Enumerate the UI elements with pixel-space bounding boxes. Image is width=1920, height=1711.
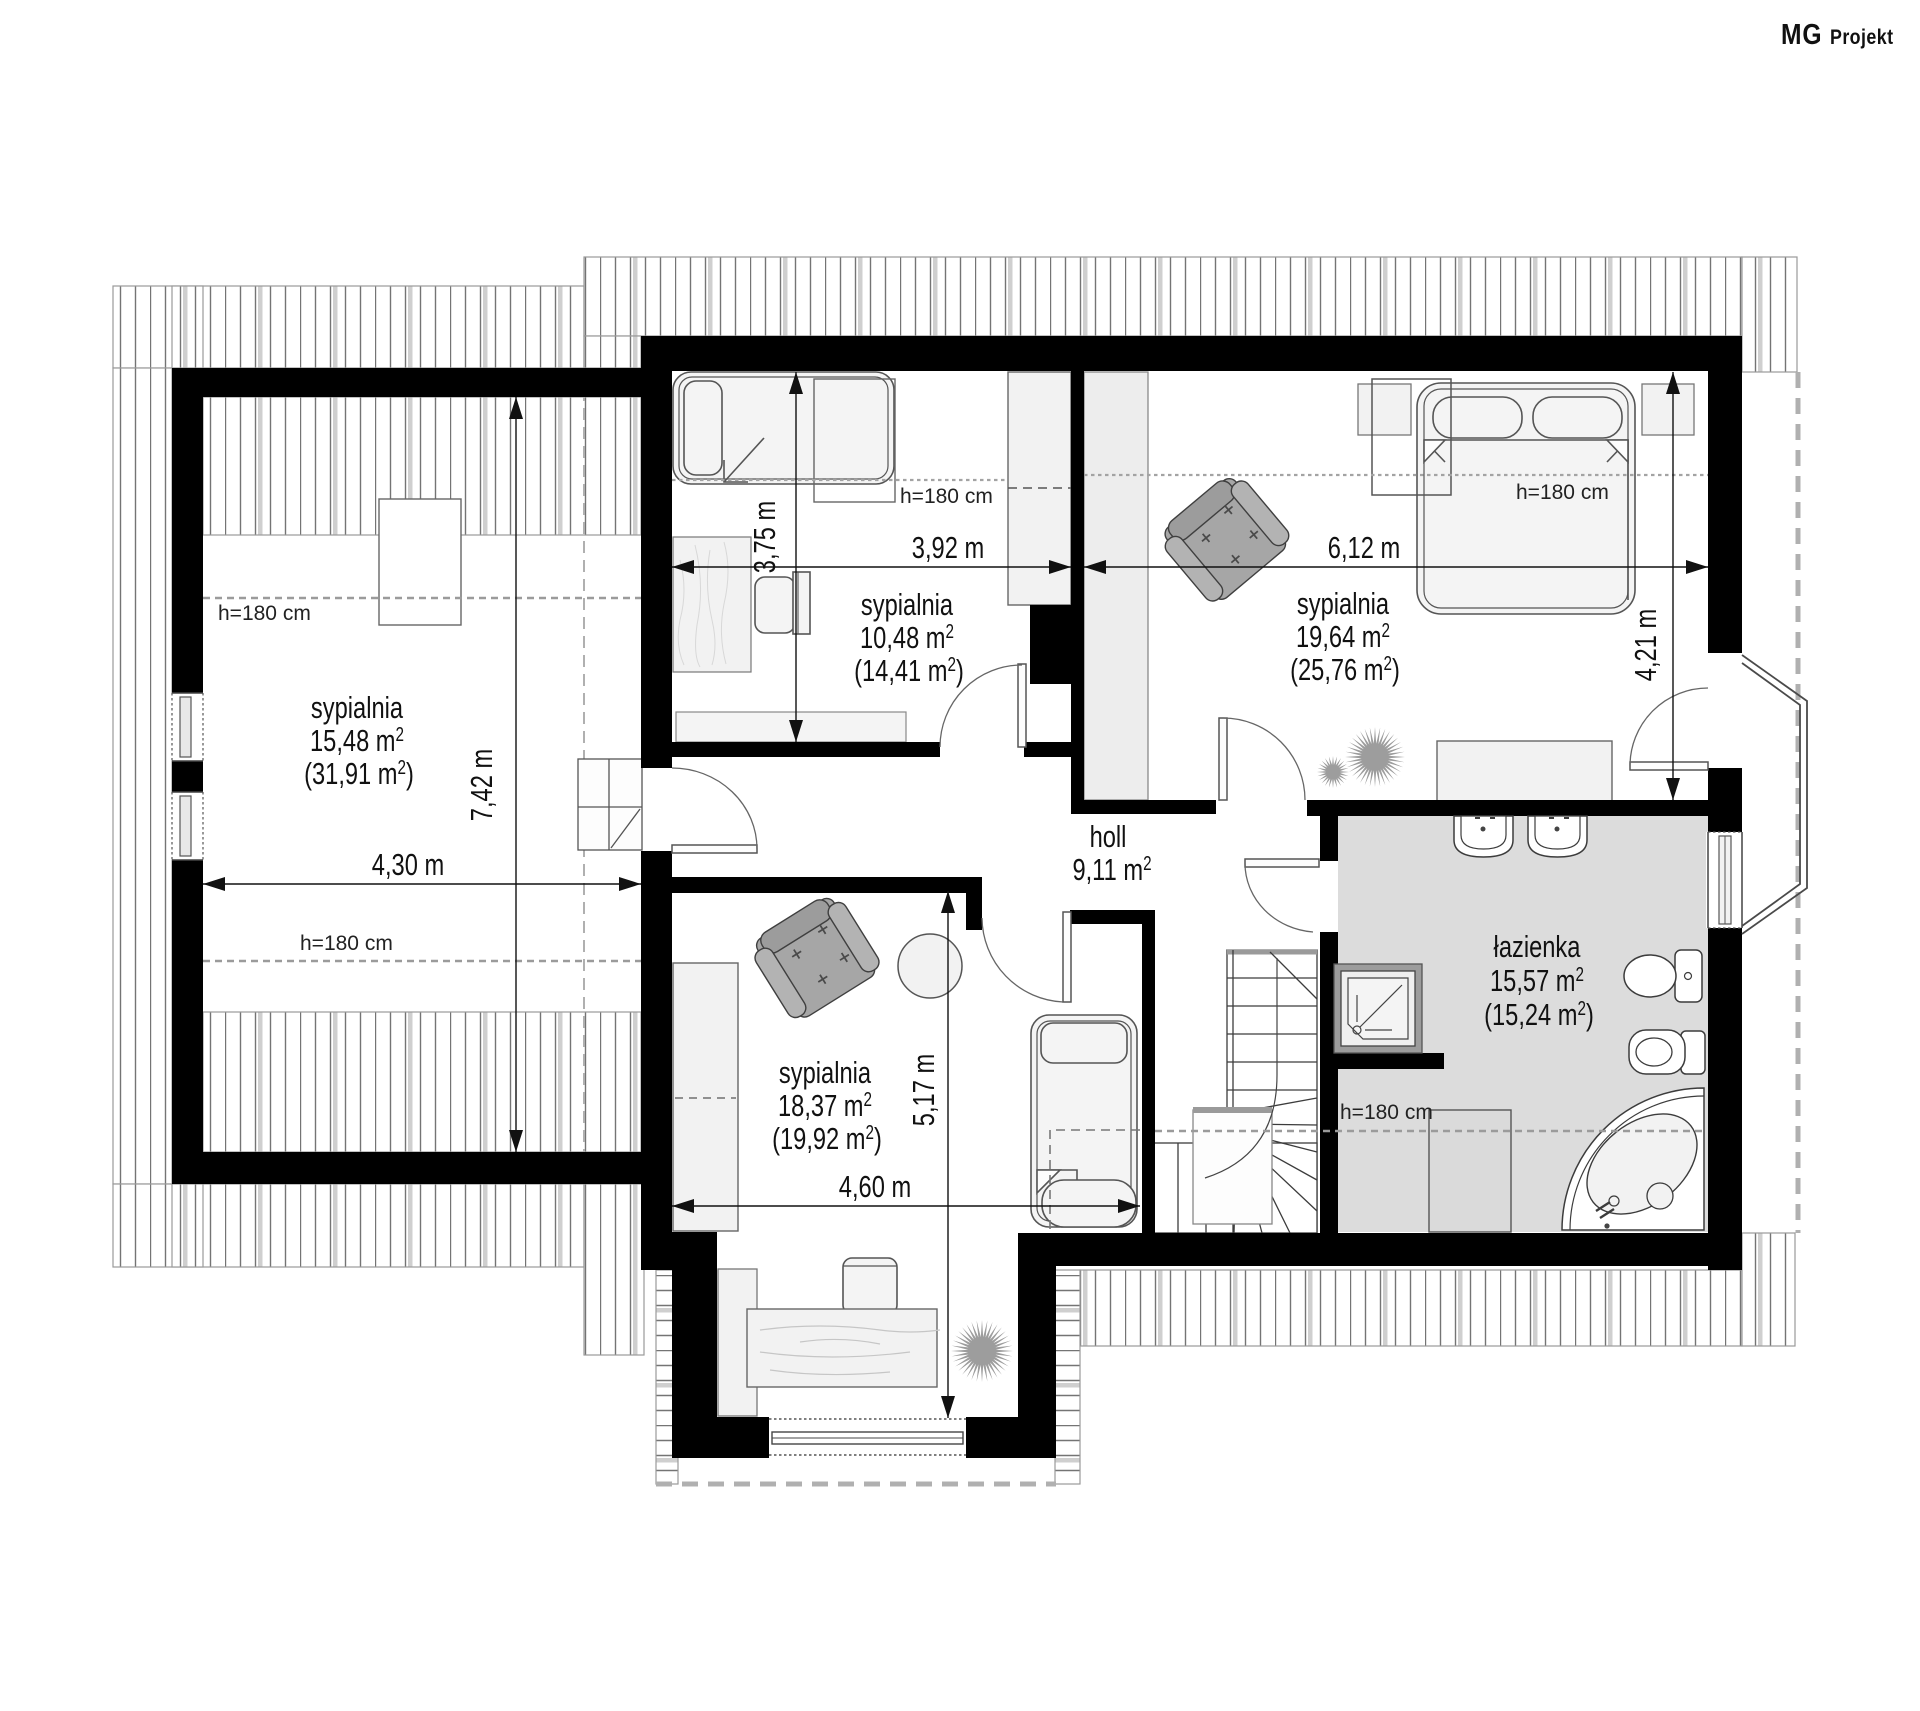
svg-text:sypialnia: sypialnia bbox=[779, 1055, 872, 1090]
svg-text:(31,91 m2): (31,91 m2) bbox=[304, 756, 414, 791]
svg-text:h=180 cm: h=180 cm bbox=[1516, 481, 1609, 504]
svg-text:15,57 m2: 15,57 m2 bbox=[1490, 963, 1584, 998]
svg-text:(15,24 m2): (15,24 m2) bbox=[1484, 997, 1594, 1032]
svg-text:5,17 m: 5,17 m bbox=[906, 1054, 941, 1126]
svg-text:sypialnia: sypialnia bbox=[311, 690, 404, 725]
svg-text:10,48 m2: 10,48 m2 bbox=[860, 620, 954, 655]
svg-text:4,60 m: 4,60 m bbox=[839, 1169, 911, 1204]
svg-text:18,37 m2: 18,37 m2 bbox=[778, 1088, 872, 1123]
svg-text:h=180 cm: h=180 cm bbox=[218, 602, 311, 625]
svg-text:6,12 m: 6,12 m bbox=[1328, 530, 1400, 565]
svg-text:h=180 cm: h=180 cm bbox=[900, 485, 993, 508]
svg-text:(25,76 m2): (25,76 m2) bbox=[1290, 652, 1400, 687]
svg-text:7,42 m: 7,42 m bbox=[464, 749, 499, 821]
svg-text:3,92 m: 3,92 m bbox=[912, 530, 984, 565]
svg-text:MG: MG bbox=[1781, 18, 1822, 50]
svg-text:sypialnia: sypialnia bbox=[1297, 586, 1390, 621]
svg-text:4,21 m: 4,21 m bbox=[1628, 609, 1663, 681]
svg-text:sypialnia: sypialnia bbox=[861, 587, 954, 622]
svg-text:Projekt: Projekt bbox=[1830, 26, 1893, 50]
svg-text:(14,41 m2): (14,41 m2) bbox=[854, 653, 964, 688]
svg-text:łazienka: łazienka bbox=[1494, 929, 1581, 964]
svg-text:3,75 m: 3,75 m bbox=[747, 501, 782, 573]
svg-text:19,64 m2: 19,64 m2 bbox=[1296, 619, 1390, 654]
svg-text:15,48 m2: 15,48 m2 bbox=[310, 723, 404, 758]
svg-text:(19,92 m2): (19,92 m2) bbox=[772, 1121, 882, 1156]
svg-text:holl: holl bbox=[1090, 819, 1127, 854]
svg-text:9,11 m2: 9,11 m2 bbox=[1072, 852, 1151, 887]
svg-text:4,30 m: 4,30 m bbox=[372, 847, 444, 882]
svg-text:h=180 cm: h=180 cm bbox=[1340, 1101, 1433, 1124]
svg-text:h=180 cm: h=180 cm bbox=[300, 932, 393, 955]
